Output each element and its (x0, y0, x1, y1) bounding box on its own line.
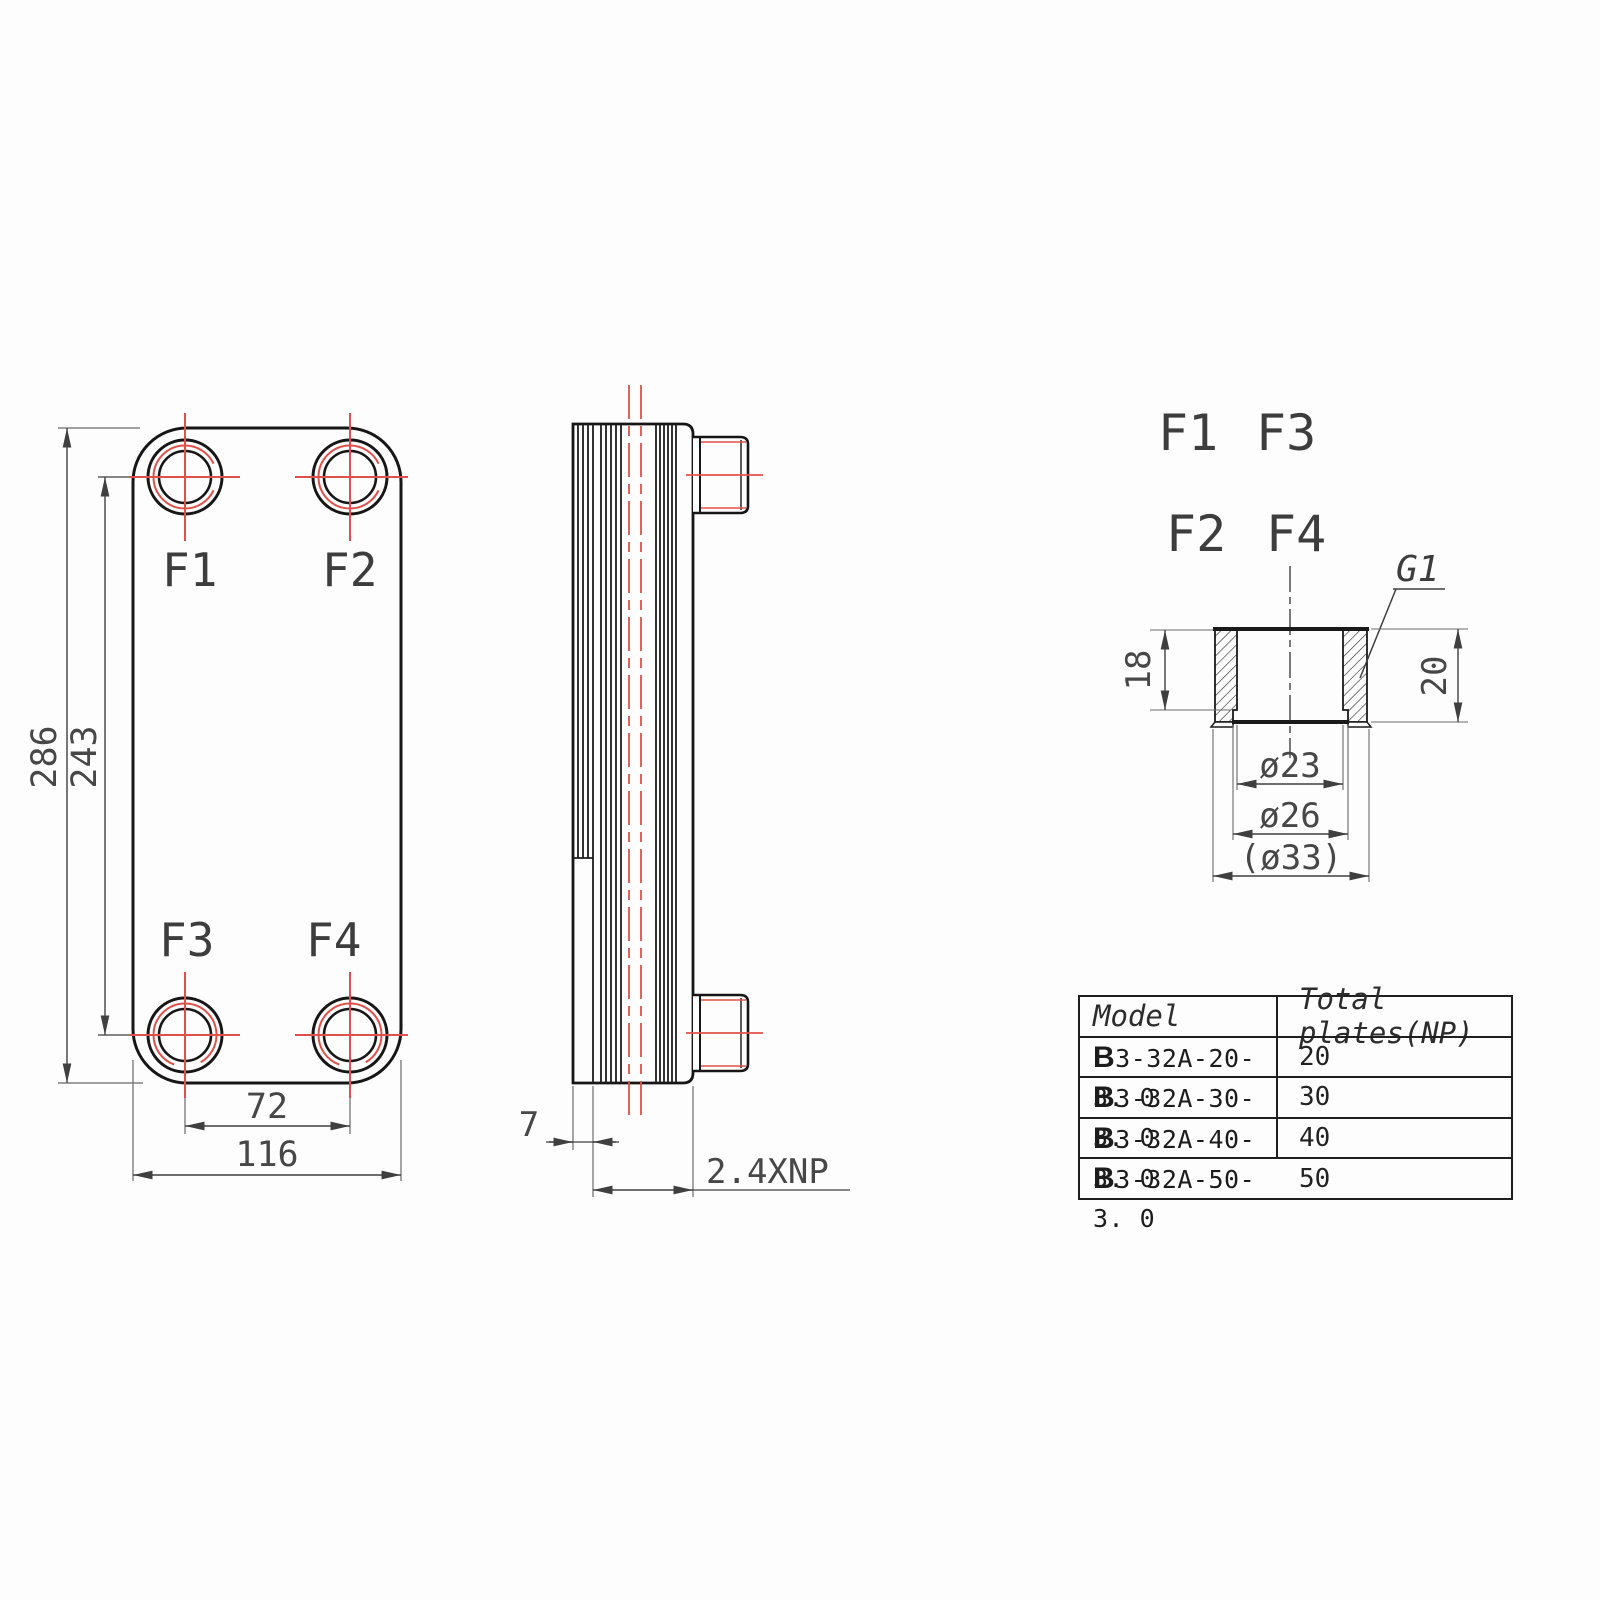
layout-label-f4: F4 (1266, 505, 1326, 563)
dim-port-center-height: 243 (65, 725, 105, 788)
dim-end-plate-thickness: 7 (519, 1105, 539, 1145)
heat-exchanger-drawing: F1 F2 F3 F4 286 243 72 116 (0, 0, 1600, 1600)
layout-label-f2: F2 (1166, 505, 1226, 563)
top-nozzle (686, 437, 763, 513)
spec-table: Model Total plates(NP) B3-32A-20-3. 0 20… (1078, 995, 1513, 1200)
table-header-model: Model (1080, 997, 1278, 1036)
dim-mid-diameter: ø26 (1259, 796, 1320, 836)
spec-table-header-row: Model Total plates(NP) (1080, 997, 1511, 1036)
dim-overall-width: 116 (235, 1135, 298, 1175)
model-cell: B3-32A-40-3. 0 (1080, 1119, 1278, 1158)
front-port-label-f4: F4 (306, 913, 361, 967)
fitting-detail: G1 18 20 ø23 ø26 (ø33) (1119, 549, 1468, 882)
port-layout-legend: F1 F3 F2 F4 (1158, 404, 1326, 563)
dim-bore-diameter: ø23 (1259, 746, 1320, 786)
fitting-left-foot (1211, 722, 1233, 727)
plates-cell: 20 (1278, 1038, 1511, 1077)
model-cell: B3-32A-30-3. 0 (1080, 1078, 1278, 1117)
dim-overall-height: 286 (25, 725, 65, 788)
table-row: B3-32A-30-3. 0 30 (1080, 1076, 1511, 1117)
table-header-total-plates: Total plates(NP) (1278, 997, 1511, 1036)
side-view: 7 2.4XNP (519, 385, 850, 1197)
dim-total-height: 20 (1415, 656, 1455, 697)
table-row: B3-32A-20-3. 0 20 (1080, 1036, 1511, 1077)
dim-stack-length: 2.4XNP (706, 1152, 829, 1192)
plates-cell: 40 (1278, 1119, 1511, 1158)
front-port-label-f1: F1 (162, 543, 217, 597)
front-view: F1 F2 F3 F4 286 243 72 116 (25, 413, 408, 1181)
fitting-right-wall (1343, 630, 1367, 722)
bottom-nozzle (686, 995, 763, 1071)
dim-thread-length: 18 (1119, 650, 1159, 691)
front-port-label-f3: F3 (159, 913, 214, 967)
technical-drawing-canvas: F1 F2 F3 F4 286 243 72 116 (0, 0, 1600, 1600)
plate-stack-outline (573, 424, 693, 1083)
dim-port-center-width: 72 (246, 1087, 288, 1127)
plates-cell: 30 (1278, 1078, 1511, 1117)
fitting-left-wall (1215, 630, 1237, 722)
model-cell: B3-32A-20-3. 0 (1080, 1038, 1278, 1077)
model-cell: B3-32A-50-3. 0 (1080, 1159, 1278, 1198)
plates-cell: 50 (1278, 1159, 1511, 1198)
front-port-label-f2: F2 (322, 543, 377, 597)
thread-spec-label: G1 (1396, 549, 1439, 590)
plate-body-outline (133, 428, 401, 1083)
table-row: B3-32A-50-3. 0 50 (1080, 1157, 1511, 1198)
table-row: B3-32A-40-3. 0 40 (1080, 1117, 1511, 1158)
layout-label-f1: F1 (1158, 404, 1218, 462)
layout-label-f3: F3 (1256, 404, 1316, 462)
fitting-right-foot (1348, 722, 1371, 727)
dim-outer-diameter: (ø33) (1240, 838, 1342, 878)
